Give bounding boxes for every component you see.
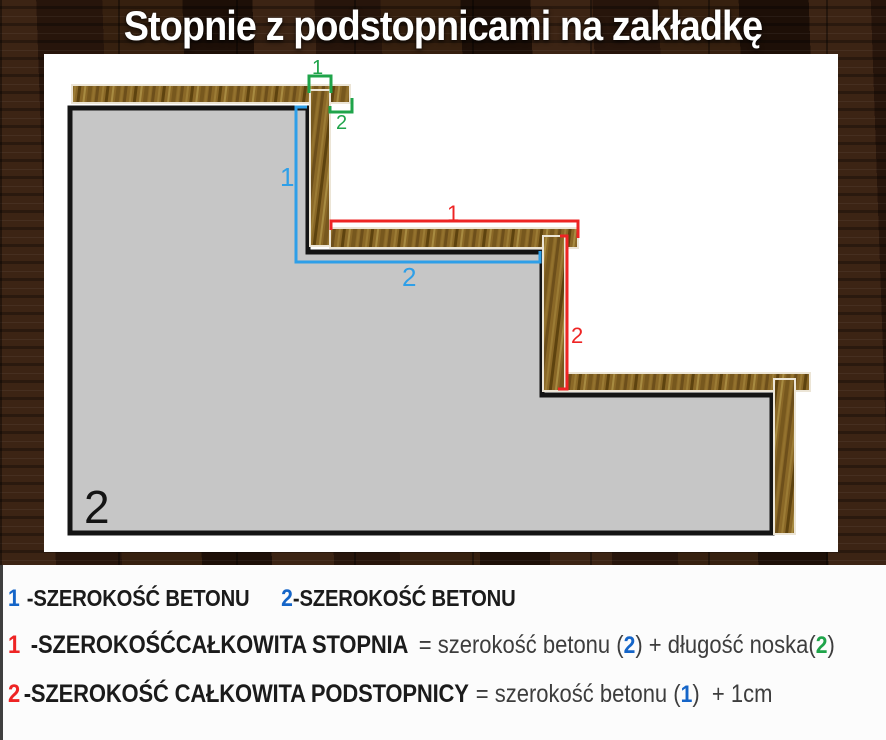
legend1-text-2: -SZEROKOŚĆ BETONU: [293, 585, 516, 612]
legend-line-2: 1 -SZEROKOŚĆCAŁKOWITA STOPNIA = szerokoś…: [8, 631, 835, 660]
diagram-panel: 2 1 2 1 2 1 2: [44, 54, 838, 552]
concrete-label: 2: [84, 481, 110, 533]
legend3-eq-part1: = szerokość betonu (: [476, 680, 681, 709]
tread-board-2: [330, 228, 578, 248]
riser-board-2: [543, 236, 565, 391]
legend2-eq-part3: ): [827, 631, 834, 660]
legend1-number-1: 1: [8, 585, 20, 613]
riser-board-1: [310, 90, 330, 246]
legend-section: 1 -SZEROKOŚĆ BETONU 2 -SZEROKOŚĆ BETONU …: [0, 565, 886, 740]
page-background: Stopnie z podstopnicami na zakładkę 2: [0, 0, 886, 740]
tread-board-3: [563, 373, 810, 391]
legend3-ref-blue: 1: [681, 681, 693, 709]
stairs-diagram: 2 1 2 1 2 1 2: [44, 54, 838, 552]
concrete-profile: [70, 108, 772, 533]
blue-mark-2: 2: [402, 262, 416, 292]
legend2-term: -SZEROKOŚĆCAŁKOWITA STOPNIA: [31, 631, 408, 660]
legend-line-1: 1 -SZEROKOŚĆ BETONU 2 -SZEROKOŚĆ BETONU: [8, 585, 516, 613]
legend2-number: 1: [8, 631, 20, 660]
legend1-text-1: -SZEROKOŚĆ BETONU: [27, 585, 250, 612]
legend-line-3: 2 -SZEROKOŚĆ CAŁKOWITA PODSTOPNICY = sze…: [8, 680, 772, 709]
legend3-eq-part2: ) + 1cm: [692, 680, 772, 709]
red-mark-2: 2: [571, 323, 583, 348]
green-mark-1: 1: [312, 57, 323, 79]
riser-board-3: [774, 379, 795, 534]
page-title: Stopnie z podstopnicami na zakładkę: [44, 2, 841, 50]
legend3-number: 2: [8, 680, 20, 709]
legend2-eq-part1: = szerokość betonu (: [419, 631, 624, 660]
blue-mark-1: 1: [280, 162, 294, 192]
red-mark-1: 1: [447, 201, 459, 226]
legend1-number-2: 2: [281, 585, 293, 613]
legend3-term: -SZEROKOŚĆ CAŁKOWITA PODSTOPNICY: [24, 680, 469, 709]
green-mark-2: 2: [336, 112, 347, 134]
legend2-ref-blue: 2: [624, 632, 636, 660]
legend2-ref-green: 2: [816, 632, 828, 660]
legend2-eq-part2: ) + długość noska(: [635, 631, 815, 660]
